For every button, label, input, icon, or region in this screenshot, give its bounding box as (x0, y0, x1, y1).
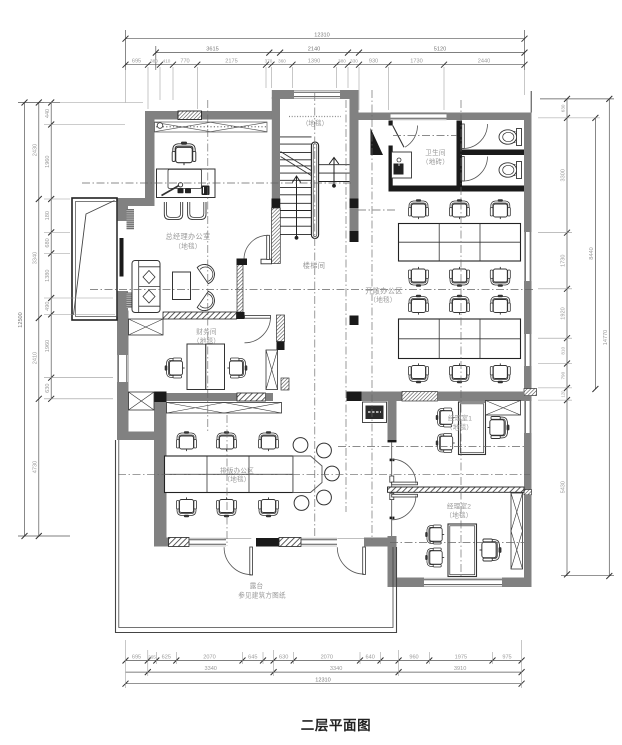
svg-text:680: 680 (45, 238, 51, 247)
svg-text:（地毯）: （地毯） (223, 475, 250, 484)
svg-text:440: 440 (45, 109, 51, 118)
svg-text:2430: 2430 (33, 144, 39, 156)
svg-text:3615: 3615 (206, 46, 218, 52)
svg-text:265: 265 (148, 654, 156, 659)
svg-text:695: 695 (132, 59, 141, 65)
svg-text:810: 810 (561, 347, 566, 355)
svg-text:625: 625 (162, 654, 171, 660)
svg-text:露台: 露台 (250, 581, 264, 590)
svg-text:2440: 2440 (478, 59, 490, 65)
svg-text:960: 960 (409, 654, 418, 660)
svg-text:630: 630 (279, 654, 288, 660)
svg-text:总经理办公室: 总经理办公室 (166, 232, 211, 241)
svg-text:1920: 1920 (561, 307, 567, 319)
svg-text:370: 370 (265, 59, 273, 64)
svg-text:4730: 4730 (33, 461, 39, 473)
svg-text:财务间: 财务间 (196, 327, 217, 336)
svg-text:2070: 2070 (321, 654, 333, 660)
svg-text:380: 380 (150, 59, 158, 64)
svg-text:3340: 3340 (330, 666, 342, 672)
svg-text:排版办公区: 排版办公区 (220, 466, 254, 475)
svg-text:卫生间: 卫生间 (425, 148, 446, 157)
svg-text:1380: 1380 (45, 269, 51, 281)
svg-text:640: 640 (366, 654, 375, 660)
svg-text:1960: 1960 (45, 155, 51, 167)
svg-text:14770: 14770 (603, 330, 609, 346)
svg-text:（地毯）: （地毯） (446, 423, 473, 432)
svg-text:380: 380 (338, 59, 346, 64)
svg-text:（地砖）: （地砖） (422, 157, 449, 166)
svg-text:180: 180 (45, 211, 51, 220)
svg-text:5120: 5120 (434, 46, 446, 52)
svg-text:1975: 1975 (455, 654, 467, 660)
svg-text:695: 695 (132, 654, 141, 660)
svg-text:（地毯）: （地毯） (369, 295, 396, 304)
svg-text:3910: 3910 (454, 666, 466, 672)
svg-text:790: 790 (561, 371, 566, 379)
svg-text:3300: 3300 (561, 169, 567, 181)
svg-text:经理室1: 经理室1 (448, 414, 472, 423)
svg-text:630: 630 (45, 384, 51, 393)
svg-text:3340: 3340 (33, 252, 39, 264)
svg-text:360: 360 (278, 59, 286, 64)
svg-text:8440: 8440 (589, 247, 595, 259)
svg-text:12500: 12500 (18, 312, 24, 328)
svg-text:490: 490 (45, 302, 51, 311)
svg-text:410: 410 (163, 59, 171, 64)
svg-text:630: 630 (561, 104, 566, 112)
svg-text:1730: 1730 (410, 59, 422, 65)
svg-text:（地毯）: （地毯） (302, 119, 328, 128)
svg-text:2410: 2410 (33, 352, 39, 364)
svg-text:参见建筑方图纸: 参见建筑方图纸 (238, 591, 286, 600)
svg-text:12310: 12310 (315, 678, 331, 684)
svg-text:975: 975 (502, 654, 511, 660)
svg-text:2175: 2175 (225, 59, 237, 65)
svg-text:（地毯）: （地毯） (445, 511, 472, 520)
svg-text:330: 330 (350, 59, 358, 64)
svg-text:（地毯）: （地毯） (174, 242, 201, 251)
svg-text:开敞办公区: 开敞办公区 (365, 287, 402, 296)
svg-text:楼梯间: 楼梯间 (303, 261, 325, 270)
svg-text:770: 770 (180, 59, 189, 65)
svg-text:1730: 1730 (561, 254, 567, 266)
svg-text:645: 645 (248, 654, 257, 660)
svg-text:12310: 12310 (314, 33, 330, 39)
svg-text:经理室2: 经理室2 (447, 502, 471, 511)
svg-text:120: 120 (561, 390, 566, 398)
svg-text:5430: 5430 (561, 481, 567, 493)
svg-text:1960: 1960 (45, 340, 51, 352)
svg-text:二层平面图: 二层平面图 (301, 718, 372, 733)
svg-text:2140: 2140 (308, 46, 320, 52)
svg-text:（地毯）: （地毯） (193, 336, 220, 345)
svg-text:2070: 2070 (203, 654, 215, 660)
svg-text:3340: 3340 (204, 666, 216, 672)
svg-text:930: 930 (369, 59, 378, 65)
svg-text:1390: 1390 (308, 59, 320, 65)
